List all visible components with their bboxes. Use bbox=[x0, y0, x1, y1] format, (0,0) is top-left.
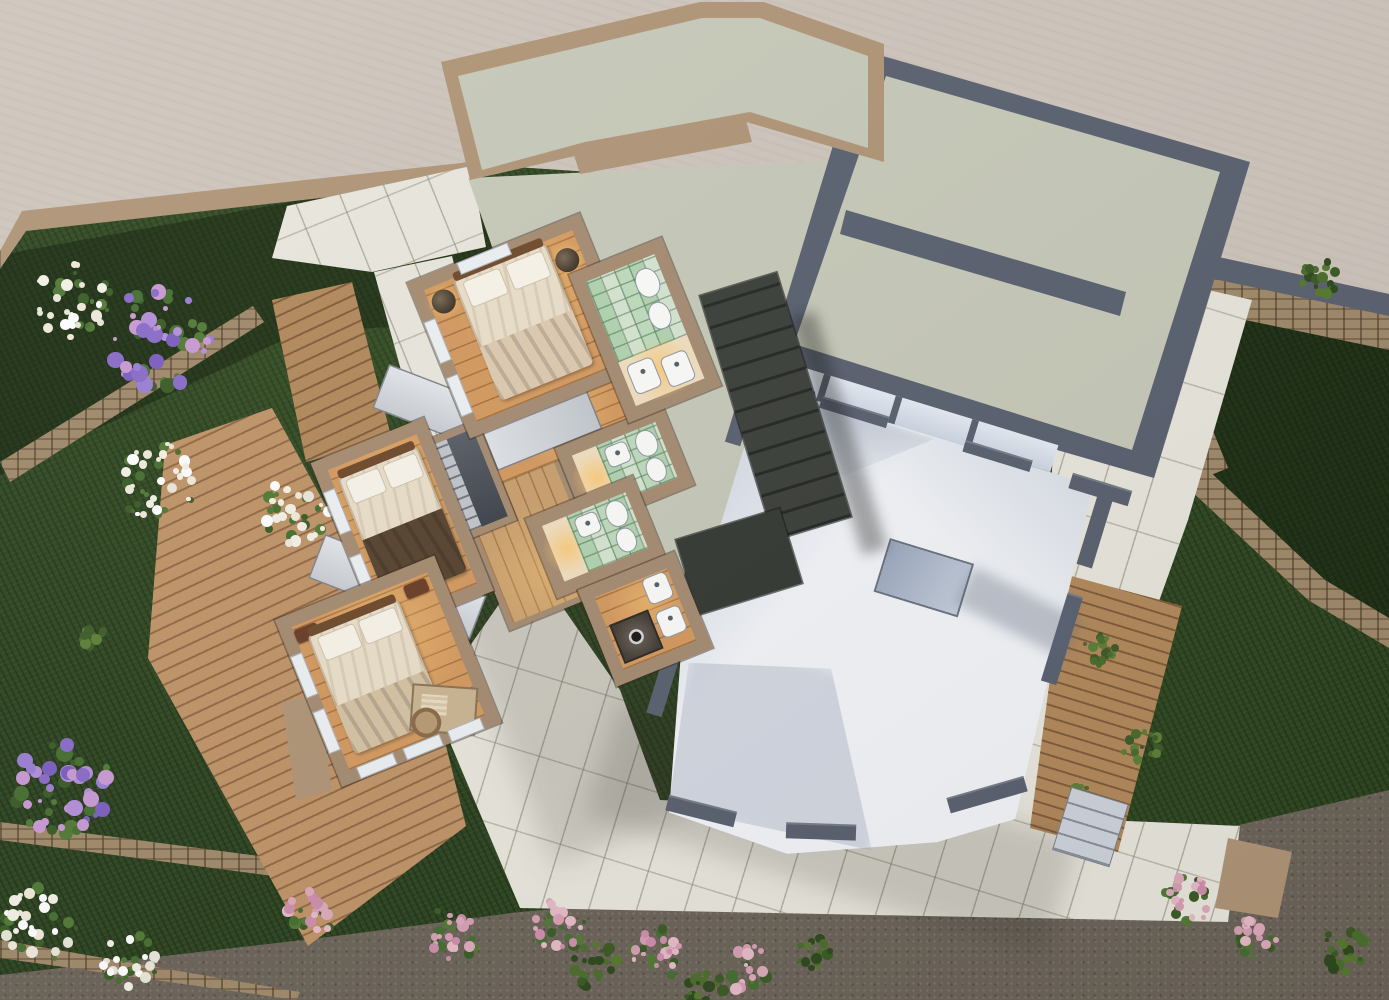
flower-cluster-shrub bbox=[569, 939, 621, 991]
flower-cluster-vine bbox=[1122, 728, 1162, 768]
flower-cluster-pink bbox=[1231, 914, 1279, 962]
flower-cluster-pink bbox=[1160, 870, 1220, 930]
3d-floor-plan-render bbox=[0, 0, 1389, 1000]
flower-cluster-daisy bbox=[0, 885, 80, 965]
flower-cluster-shrub bbox=[683, 966, 727, 1000]
flower-cluster-vine bbox=[81, 626, 109, 654]
flower-cluster-pink bbox=[420, 905, 480, 965]
flower-cluster-shrub bbox=[1300, 258, 1340, 298]
nightstand bbox=[403, 578, 430, 600]
bedside-table bbox=[428, 286, 459, 317]
flower-cluster-shrub bbox=[1319, 924, 1371, 976]
flower-cluster-pink bbox=[284, 889, 336, 941]
flower-cluster-pink bbox=[630, 922, 690, 982]
flower-cluster-shrub bbox=[795, 935, 835, 975]
flower-cluster-daisy bbox=[114, 439, 206, 531]
bed-blanket bbox=[480, 310, 594, 401]
flower-cluster-hydrangea bbox=[8, 732, 116, 840]
flower-cluster-hydrangea bbox=[102, 282, 214, 394]
flower-cluster-daisy bbox=[100, 932, 160, 992]
wall-chunk bbox=[786, 822, 857, 840]
